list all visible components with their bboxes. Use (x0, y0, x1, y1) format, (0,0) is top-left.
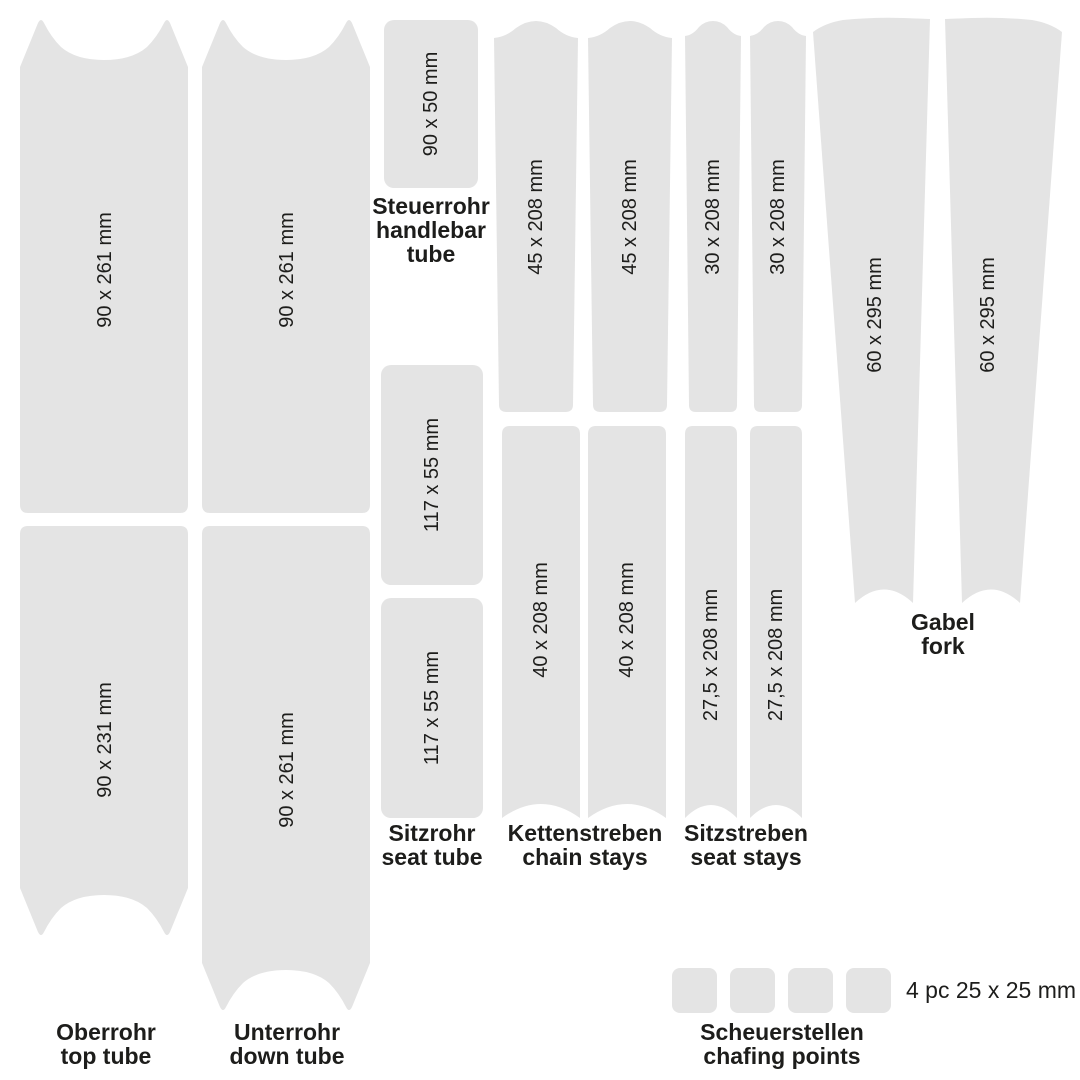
label-top-tube: Oberrohr top tube (56, 1020, 156, 1068)
label-down-tube-en: down tube (230, 1044, 345, 1068)
dim-chain-stay-lower-1: 40 x 208 mm (531, 562, 551, 678)
chafing-point-square-2 (730, 968, 775, 1013)
label-handlebar-tube-de: Steuerrohr (365, 194, 497, 218)
label-chain-stays-en: chain stays (508, 845, 663, 869)
label-chain-stays-de: Kettenstreben (508, 821, 663, 845)
dim-seat-stay-lower-1: 27,5 x 208 mm (701, 589, 721, 721)
dim-fork-2: 60 x 295 mm (978, 257, 998, 373)
label-chafing-points: Scheuerstellen chafing points (700, 1020, 864, 1068)
dim-chain-stay-lower-2: 40 x 208 mm (617, 562, 637, 678)
label-top-tube-en: top tube (56, 1044, 156, 1068)
label-chain-stays: Kettenstreben chain stays (508, 821, 663, 869)
dim-seat-stay-lower-2: 27,5 x 208 mm (766, 589, 786, 721)
label-fork-de: Gabel (911, 610, 975, 634)
label-chafing-points-en: chafing points (700, 1044, 864, 1068)
dim-seat-stay-upper-1: 30 x 208 mm (703, 159, 723, 275)
frame-protection-kit-diagram: 90 x 261 mm 90 x 261 mm 90 x 231 mm 90 x… (0, 0, 1080, 1080)
chafing-point-square-3 (788, 968, 833, 1013)
label-down-tube: Unterrohr down tube (230, 1020, 345, 1068)
dim-seat-tube-1: 117 x 55 mm (422, 418, 442, 532)
label-seat-tube-de: Sitzrohr (382, 821, 483, 845)
dim-top-tube-lower: 90 x 231 mm (95, 682, 115, 798)
label-fork: Gabel fork (911, 610, 975, 658)
dim-chain-stay-upper-1: 45 x 208 mm (526, 159, 546, 275)
label-seat-stays-de: Sitzstreben (684, 821, 808, 845)
dim-handlebar-tube: 90 x 50 mm (421, 52, 441, 156)
chafing-points-note: 4 pc 25 x 25 mm (906, 978, 1076, 1002)
fork-piece-right (945, 18, 1062, 603)
dim-down-tube-lower: 90 x 261 mm (277, 712, 297, 828)
chafing-point-square-4 (846, 968, 891, 1013)
dim-top-tube-upper: 90 x 261 mm (95, 212, 115, 328)
label-fork-en: fork (911, 634, 975, 658)
dim-down-tube-upper: 90 x 261 mm (277, 212, 297, 328)
label-seat-stays: Sitzstreben seat stays (684, 821, 808, 869)
dim-fork-1: 60 x 295 mm (865, 257, 885, 373)
label-top-tube-de: Oberrohr (56, 1020, 156, 1044)
chafing-point-square-1 (672, 968, 717, 1013)
label-handlebar-tube-en: handlebar tube (365, 218, 497, 266)
label-seat-tube-en: seat tube (382, 845, 483, 869)
label-chafing-points-de: Scheuerstellen (700, 1020, 864, 1044)
label-down-tube-de: Unterrohr (230, 1020, 345, 1044)
dim-chain-stay-upper-2: 45 x 208 mm (620, 159, 640, 275)
label-seat-stays-en: seat stays (684, 845, 808, 869)
dim-seat-stay-upper-2: 30 x 208 mm (768, 159, 788, 275)
label-handlebar-tube: Steuerrohr handlebar tube (365, 194, 497, 266)
label-seat-tube: Sitzrohr seat tube (382, 821, 483, 869)
dim-seat-tube-2: 117 x 55 mm (422, 651, 442, 765)
